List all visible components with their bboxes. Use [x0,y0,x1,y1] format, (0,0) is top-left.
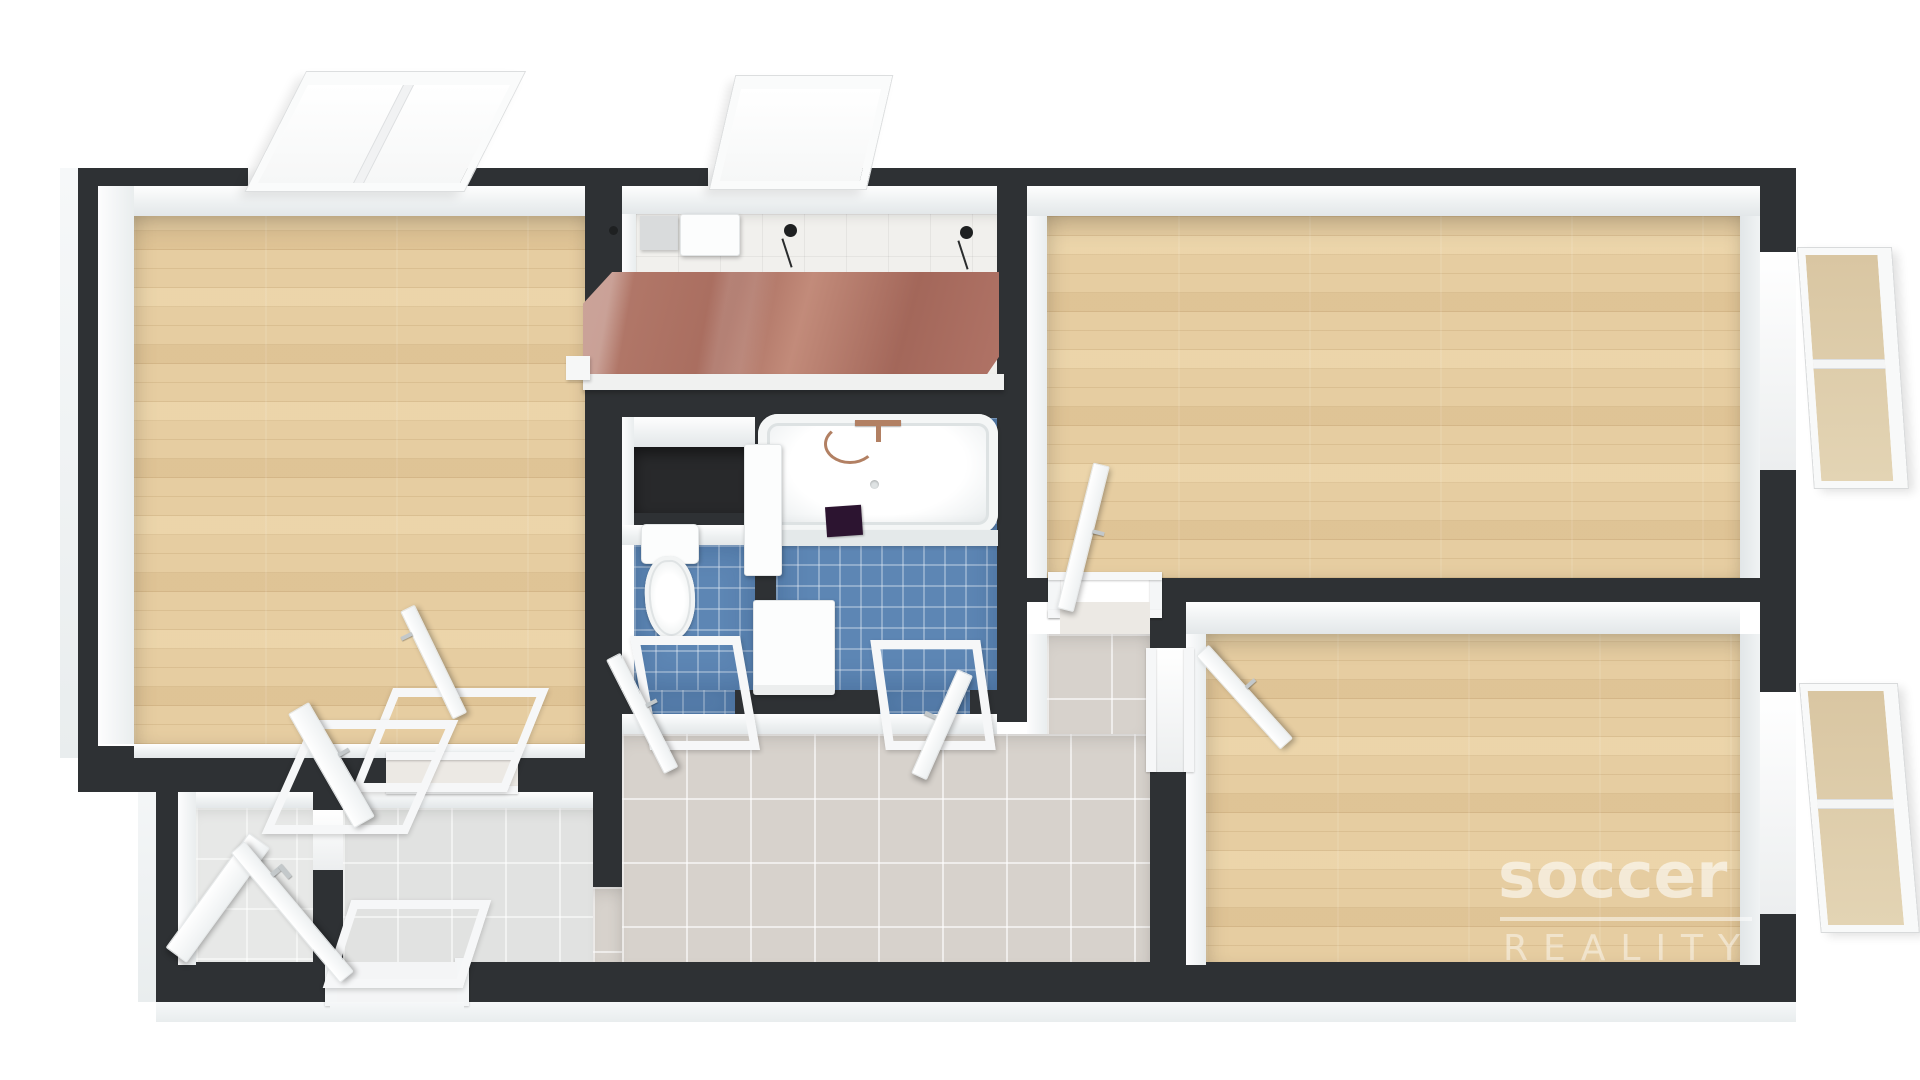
inner-wall-face-bedroom-east [1740,216,1760,578]
wall-entry-stub [593,792,622,887]
corridor-floor [1047,634,1150,734]
window-opening-east-top [1760,252,1796,470]
living-room-floor [134,216,585,744]
bath-mat [825,505,863,537]
bath-faucet-riser [876,424,881,442]
inner-wall-face-storage-north [634,417,755,447]
hallway-floor-stub [593,887,622,962]
inner-wall-face-kitchen-north [622,186,997,214]
entrance-step [330,1002,464,1022]
exterior-wall-west [78,168,98,758]
inner-wall-face-bedroom-west [1027,216,1047,578]
watermark-brand: soccer [1498,844,1818,907]
refrigerator [680,214,740,256]
wall-living-east [585,168,622,792]
window-east-top [1798,248,1908,488]
wall-bedroom2-west [1150,772,1186,965]
kitchen-cabinet-end [566,356,590,380]
washing-machine [753,600,835,695]
bedroom-right-floor [1047,216,1740,578]
inner-wall-face-storage-west [622,417,634,525]
outer-wall-face-west [60,168,78,758]
inner-wall-face-corridor-west [1027,634,1047,734]
window-mullion-icon [1817,799,1894,809]
floorplan-render: soccer REALITY [0,0,1920,1080]
bathtub-drain [870,480,879,489]
ceiling-light-icon [784,224,797,237]
bedroom2-door-rail [1146,648,1156,772]
window-mullion-icon [353,85,414,183]
storage-niche-floor [634,447,755,513]
kitchen-counter [640,216,678,250]
inner-wall-face-bedroom-north [1027,186,1760,216]
inner-wall-face-living-west [98,186,134,744]
watermark-rule [1500,917,1752,921]
bath-cabinet [744,444,782,576]
hallway-floor [622,734,1150,962]
window-north-middle [710,76,892,189]
bathtub-apron [758,530,998,546]
wall-bedroom-south [1150,578,1760,602]
wall-living-south [518,758,622,792]
ceiling-light-icon [960,226,973,239]
kitchen-cabinet-plinth [583,374,1004,390]
ceiling-light-icon [609,226,618,235]
window-mullion-icon [1813,359,1886,369]
kitchen-cabinets [583,272,999,378]
inner-wall-face-bedroom2-north [1186,602,1740,634]
wall-kitchen-bath-east [997,168,1027,722]
shower-hose-icon [824,424,876,464]
bedroom2-door-rail [1184,648,1194,772]
watermark-subtitle: REALITY [1498,928,1818,969]
watermark-logo: soccer REALITY [1498,844,1818,969]
